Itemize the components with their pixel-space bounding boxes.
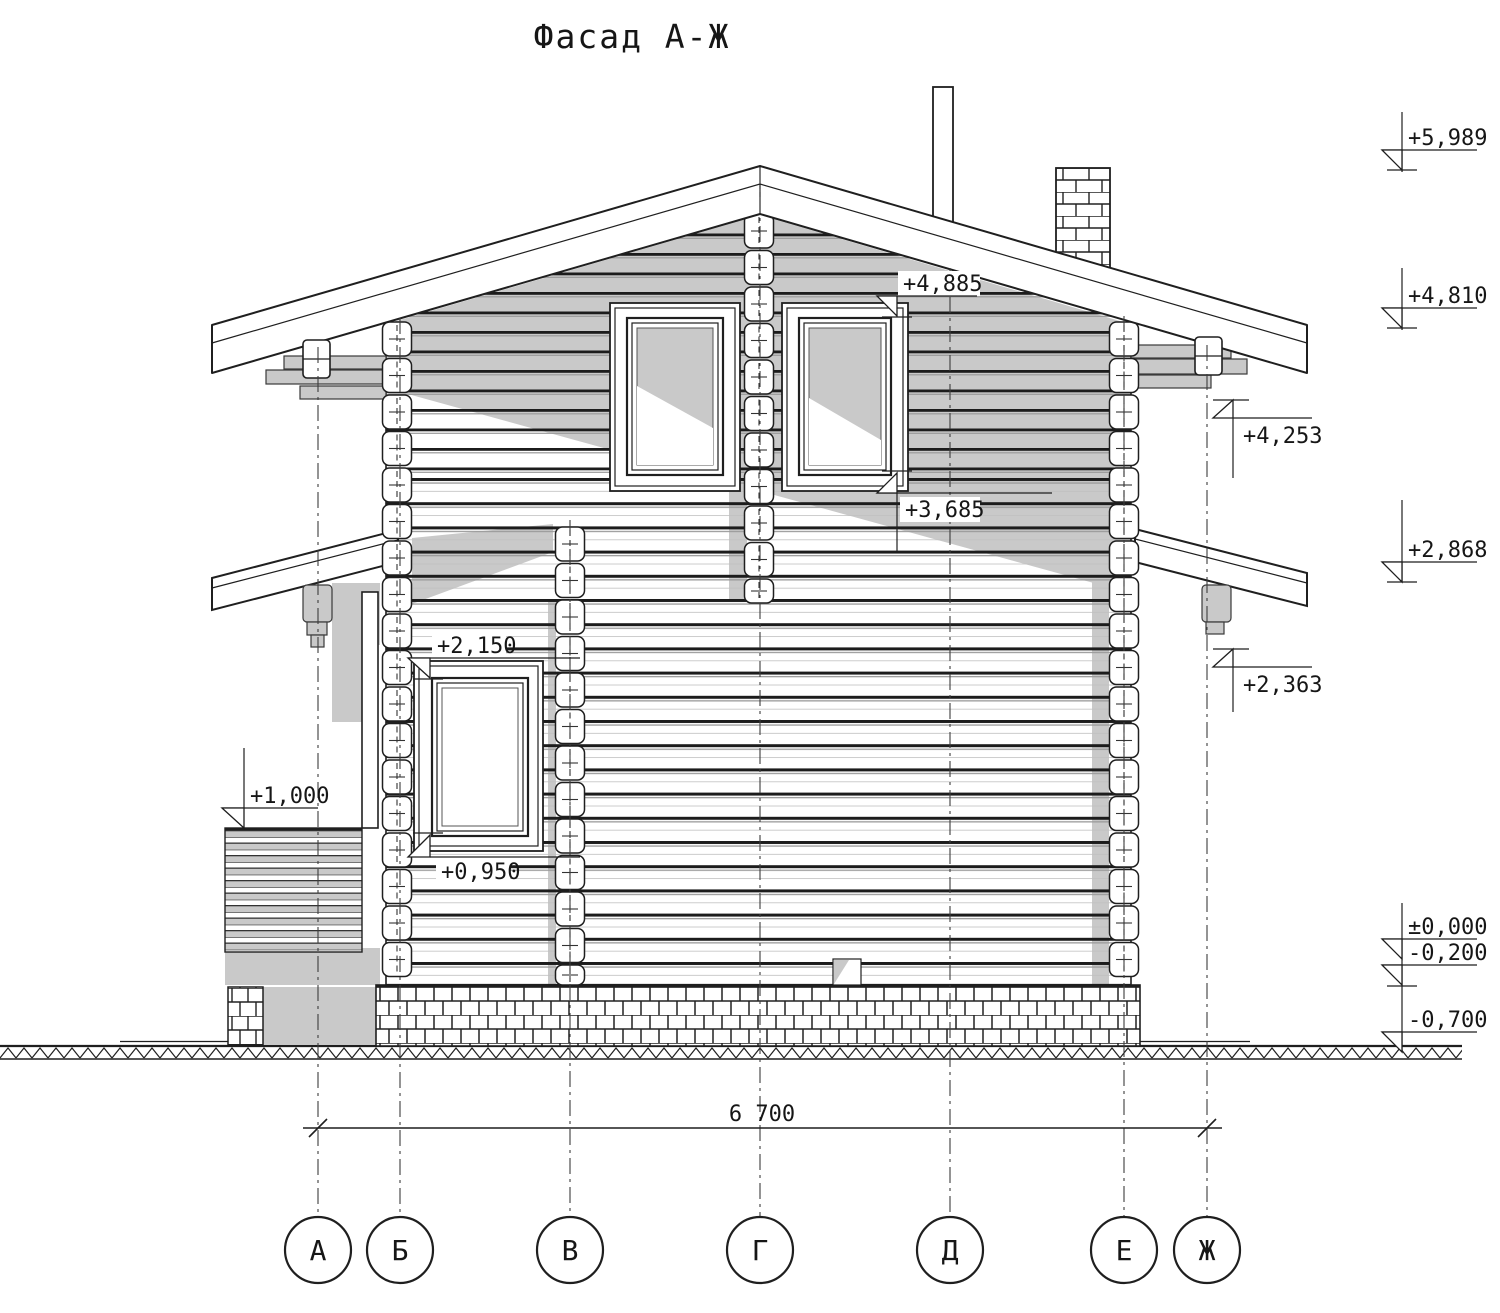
window-upper-right (782, 303, 908, 491)
under-house-shadow (263, 987, 377, 1045)
axis-label: Е (1116, 1234, 1133, 1267)
window-lower (414, 661, 543, 851)
canopy-right (1135, 529, 1307, 634)
balcony-railing (225, 828, 362, 952)
level-mark-balcony: +1,000 (222, 748, 329, 829)
axis-label: Г (752, 1234, 769, 1267)
level-value: +4,253 (1243, 424, 1322, 449)
level-value: +5,989 (1408, 126, 1487, 151)
window-upper-left (610, 303, 740, 491)
foundation-brickwork (376, 985, 1140, 1046)
level-mark-canopy-right: +2,363 (1213, 649, 1322, 712)
level-value: -0,700 (1408, 1008, 1487, 1033)
axis-label: Б (392, 1234, 409, 1267)
post-shadow (332, 645, 362, 722)
level-value: +2,150 (437, 634, 516, 659)
axis-label: А (310, 1234, 327, 1267)
log-column-axis-g (745, 214, 774, 603)
balcony-base-shadow (225, 948, 380, 985)
facade-drawing: Фасад А-Ж (0, 0, 1500, 1313)
axis-circle-a: А (285, 1217, 351, 1283)
drawing-title: Фасад А-Ж (534, 17, 731, 56)
brick-pier (228, 987, 263, 1045)
level-mark-wall-top: +4,253 (1213, 400, 1322, 478)
axis-circle-v: В (537, 1217, 603, 1283)
level-mark-canopy: +2,868 (1382, 500, 1487, 582)
level-mark-eave: +4,810 (1382, 268, 1487, 330)
canopy-bracket-right (1202, 585, 1231, 622)
level-value: +0,950 (441, 860, 520, 885)
balcony (225, 583, 380, 1045)
level-value: +3,685 (905, 498, 984, 523)
dimension-overall: 6 700 (303, 1102, 1222, 1137)
facade-drawing-sheet: Фасад А-Ж (0, 0, 1500, 1313)
porch-post (362, 592, 378, 828)
dimension-value: 6 700 (729, 1102, 795, 1127)
level-value: ±0,000 (1408, 915, 1487, 940)
level-value: +1,000 (250, 784, 329, 809)
level-value: +2,363 (1243, 673, 1322, 698)
axis-label: В (562, 1234, 579, 1267)
level-value: +4,885 (903, 272, 982, 297)
vent-pipe (933, 87, 953, 222)
axis-circle-b: Б (367, 1217, 433, 1283)
axis-circle-g: Г (727, 1217, 793, 1283)
axis-circle-d: Д (917, 1217, 983, 1283)
level-value: +2,868 (1408, 538, 1487, 563)
level-mark-ridge: +5,989 (1382, 112, 1487, 172)
axis-circle-zh: Ж (1174, 1217, 1240, 1283)
axis-circle-e: Е (1091, 1217, 1157, 1283)
window-glass (442, 688, 518, 826)
level-value: -0,200 (1408, 941, 1487, 966)
axis-label: Д (942, 1234, 959, 1267)
level-value: +4,810 (1408, 284, 1487, 309)
axis-label: Ж (1199, 1234, 1216, 1267)
